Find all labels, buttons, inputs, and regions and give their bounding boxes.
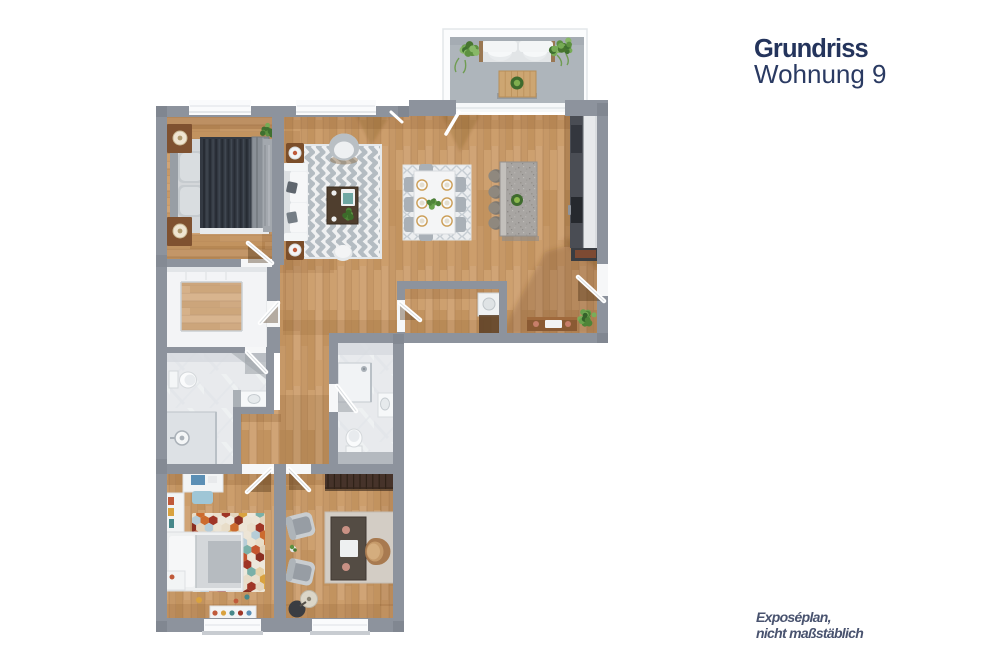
svg-text:Exposéplan,: Exposéplan, <box>756 609 831 625</box>
svg-text:Wohnung 9: Wohnung 9 <box>754 59 887 89</box>
svg-text:nicht maßstäblich: nicht maßstäblich <box>756 625 863 641</box>
